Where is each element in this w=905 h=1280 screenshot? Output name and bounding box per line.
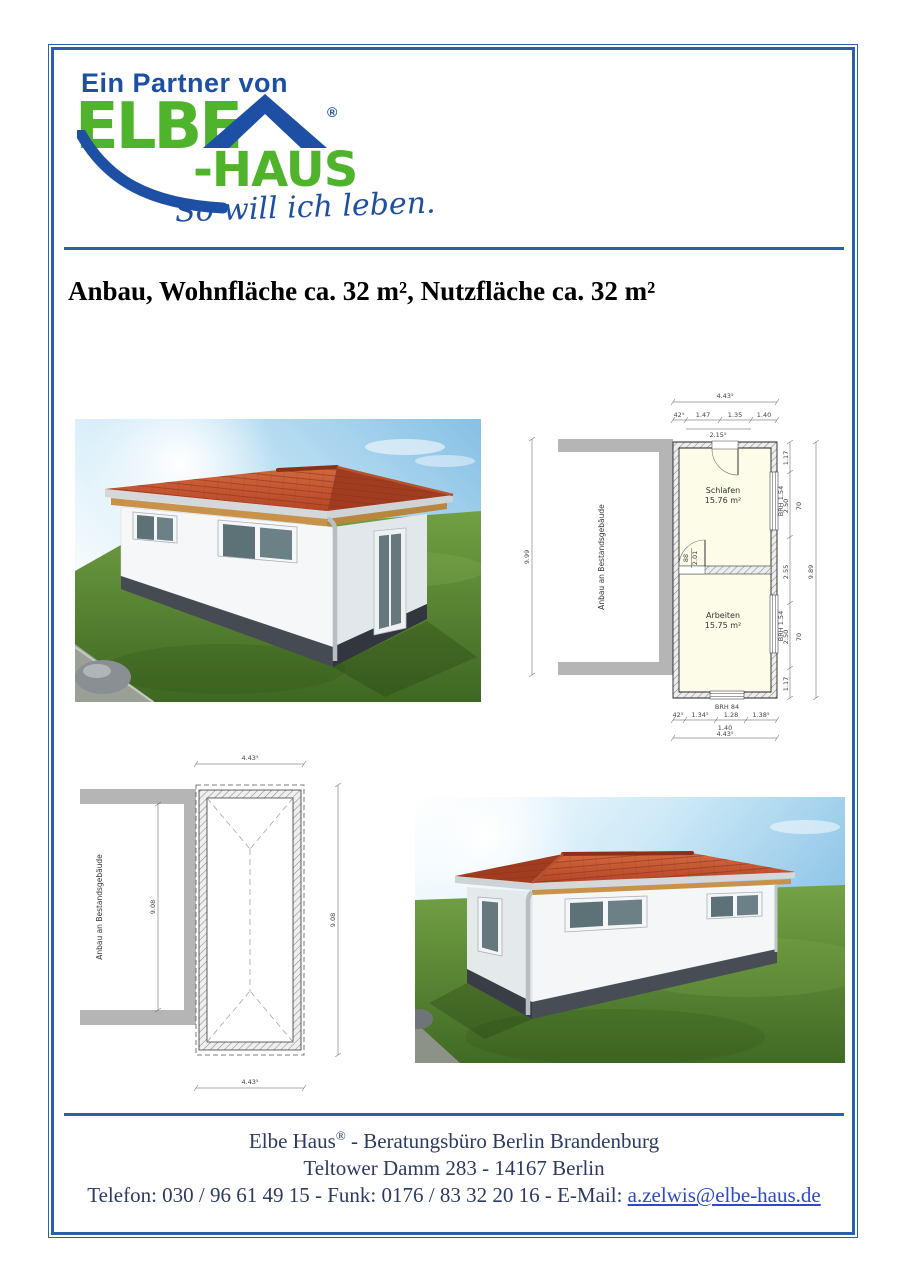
ridge xyxy=(563,853,692,854)
dim-right-seg-2: 2.50 xyxy=(782,499,790,513)
window-small xyxy=(707,892,762,919)
render-3d-front-view xyxy=(415,797,845,1063)
dim-top-sub: 2.15⁵ xyxy=(709,431,726,439)
glass-door xyxy=(374,528,406,635)
dim-middle-vertical: 9.08 xyxy=(149,900,157,914)
win-h-upper: 70 xyxy=(795,502,803,510)
room-2-area: 15.75 m² xyxy=(705,621,741,630)
dim-bottom-total: 4.43⁵ xyxy=(241,1078,258,1086)
office-label: - Beratungsbüro Berlin Brandenburg xyxy=(346,1129,659,1153)
window-small xyxy=(133,512,177,543)
footer-line-3: Telefon: 030 / 96 61 49 15 - Funk: 0176 … xyxy=(64,1182,844,1209)
dim-bot-seg-3: 1.28 xyxy=(724,711,738,719)
dim-right-seg-5: 1.17 xyxy=(782,677,790,691)
email-link[interactable]: a.zelwis@elbe-haus.de xyxy=(628,1183,821,1207)
anbau-roof-plan xyxy=(196,785,304,1055)
dim-top-total: 4.43⁵ xyxy=(241,754,258,762)
footer-line-1: Elbe Haus® - Beratungsbüro Berlin Brande… xyxy=(64,1122,844,1155)
elbe-haus-logo: Ein Partner von ELBE ® -HAUS So will ich… xyxy=(75,64,445,244)
room-1-area: 15.76 m² xyxy=(705,496,741,505)
dim-bot-total: 4.43⁵ xyxy=(716,730,733,738)
contact-numbers: Telefon: 030 / 96 61 49 15 - Funk: 0176 … xyxy=(87,1183,627,1207)
dim-right-total: 9.89 xyxy=(807,565,815,579)
dim-top-seg-3: 1.35 xyxy=(728,411,742,419)
window-large xyxy=(565,896,647,932)
registered-mark: ® xyxy=(327,104,337,120)
dim-top-seg-2: 1.47 xyxy=(696,411,710,419)
page-title: Anbau, Wohnfläche ca. 32 m², Nutzfläche … xyxy=(68,276,655,307)
page: Ein Partner von ELBE ® -HAUS So will ich… xyxy=(0,0,905,1280)
existing-building-label: Anbau an Bestandsgebäude xyxy=(95,854,104,960)
dim-left-total: 9.99 xyxy=(523,550,531,564)
dim-right-seg-4: 2.50 xyxy=(782,630,790,644)
sill-bottom: BRH 84 xyxy=(715,703,739,711)
door-width-label: 88 xyxy=(682,554,690,562)
window-bottom xyxy=(710,691,744,699)
dim-top-total: 4.43⁵ xyxy=(716,392,733,400)
room-1-name: Schlafen xyxy=(706,486,740,495)
existing-building: Anbau an Bestandsgebäude xyxy=(558,439,673,675)
win-h-lower: 70 xyxy=(795,633,803,641)
dim-right-vertical: 9.08 xyxy=(329,913,337,927)
dim-right-seg-1: 1.17 xyxy=(782,451,790,465)
dim-top-seg-4: 1.40 xyxy=(757,411,771,419)
floorplan-lower: Anbau an Bestandsgebäude 4.43⁵ 9.08 9.08… xyxy=(58,742,393,1097)
render-3d-rear-view xyxy=(75,419,481,702)
registered-mark: ® xyxy=(336,1128,346,1143)
dim-right-seg-3: 2.55 xyxy=(782,565,790,579)
dim-bot-seg-2: 1.34⁵ xyxy=(691,711,708,719)
existing-building-label: Anbau an Bestandsgebäude xyxy=(597,504,606,610)
divider-bottom xyxy=(64,1113,844,1116)
dim-bot-seg-4: 1.38⁵ xyxy=(752,711,769,719)
window-large xyxy=(218,520,297,563)
door-height-label: 2.01 xyxy=(691,551,699,565)
footer: Elbe Haus® - Beratungsbüro Berlin Brande… xyxy=(64,1122,844,1209)
divider-top xyxy=(64,247,844,250)
existing-building: Anbau an Bestandsgebäude xyxy=(80,789,196,1025)
dim-top-seg-1: 42⁵ xyxy=(674,411,685,419)
room-2-name: Arbeiten xyxy=(706,611,740,620)
company-name: Elbe Haus xyxy=(249,1129,336,1153)
anbau-plan: 88 2.01 Schlafen 15.76 m² Arbe xyxy=(673,441,778,699)
dim-bot-seg-1: 42⁵ xyxy=(673,711,684,719)
floorplan-upper: Anbau an Bestandsgebäude 88 2.01 xyxy=(520,380,850,742)
footer-line-2: Teltower Damm 283 - 14167 Berlin xyxy=(64,1155,844,1182)
window-tall xyxy=(478,897,502,956)
